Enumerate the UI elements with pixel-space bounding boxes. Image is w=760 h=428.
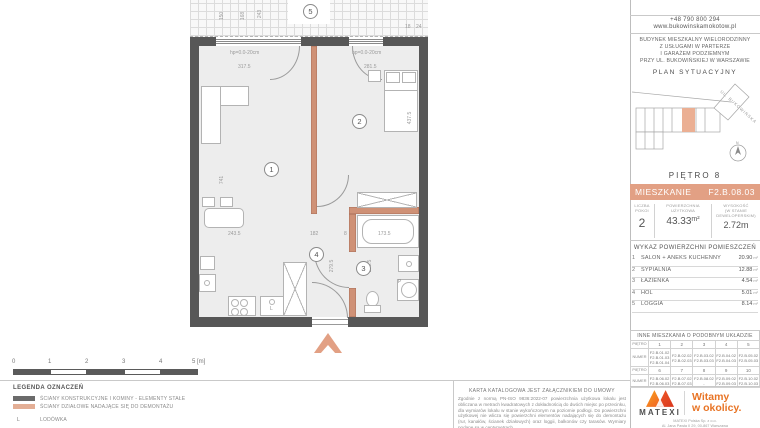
similar-table: PIĘTRO12345NUMERF2.B.01.02F2.B.01.03F2.B… xyxy=(630,340,760,388)
dining-table xyxy=(204,208,244,228)
stat-value: 2.72m xyxy=(712,220,760,230)
toilet-tank xyxy=(364,305,381,313)
stat-label: UŻYTKOWA xyxy=(655,209,711,214)
window xyxy=(216,39,301,44)
dim-label: 281.5 xyxy=(364,64,377,70)
building-description-line: PRZY UL. BUKOWIŃSKIEJ W WARSZAWIE xyxy=(630,58,760,65)
building-description-line: BUDYNEK MIESZKALNY WIELORODZINNY xyxy=(630,37,760,44)
wardrobe xyxy=(357,192,417,208)
wall xyxy=(190,317,312,327)
partition-wall xyxy=(349,214,356,252)
room-number-1: 1 xyxy=(264,162,279,177)
divider xyxy=(684,391,685,415)
scale-segment xyxy=(13,369,50,375)
floor-title: PIĘTRO 8 xyxy=(630,171,760,180)
sofa xyxy=(201,86,221,144)
brand-tagline: Witamy w okolicy. xyxy=(692,392,741,414)
stat-value: 43.33m² xyxy=(655,216,711,227)
dim-label: 18 xyxy=(405,24,411,30)
dim-label: 741 xyxy=(219,176,225,184)
scale-label: 0 xyxy=(12,359,15,365)
fridge-label: L xyxy=(270,306,273,312)
wall xyxy=(301,37,349,46)
area-row: 4HOL5.01m² xyxy=(632,290,758,302)
company-address: Al. Jana Pawła II 29, 00-867 Warszawa xyxy=(630,424,760,428)
legend-swatch-salmon xyxy=(13,404,35,409)
burner-icon xyxy=(231,308,239,316)
apartment-code: F2.B.08.03 xyxy=(708,187,755,197)
dim-label: hp=0.0-20cm xyxy=(230,50,259,56)
entrance-arrow-notch xyxy=(320,345,336,354)
scale-segment xyxy=(124,369,161,375)
washer-label: P xyxy=(398,279,401,285)
legend-item-label: ŚCIANY KONSTRUKCYJNE I KOMINY - ELEMENTY… xyxy=(40,396,185,402)
stat-height: WYSOKOŚĆ (W STANIE DEWELOPERSKIM) 2.72m xyxy=(711,204,760,238)
area-row: 3ŁAZIENKA4.54m² xyxy=(632,278,758,290)
dim-label: 243 xyxy=(257,10,263,18)
wall xyxy=(348,317,428,327)
area-row: 5LOGGIA8.14m² xyxy=(632,301,758,313)
scale-label: 5 [m] xyxy=(192,359,205,365)
chair xyxy=(202,197,215,207)
legend-item-label: LODÓWKA xyxy=(40,417,67,423)
burner-icon xyxy=(240,299,248,307)
window xyxy=(349,39,383,44)
fixture-dot-icon xyxy=(406,261,412,267)
bed-line xyxy=(384,90,418,91)
room-number-3: 3 xyxy=(356,261,371,276)
divider xyxy=(453,380,454,428)
svg-text:N: N xyxy=(736,141,739,145)
wall xyxy=(419,37,428,327)
partition-wall xyxy=(349,288,356,317)
burner-icon xyxy=(231,299,239,307)
legend-item-label: ŚCIANY DZIAŁOWE NADAJĄCE SIĘ DO DEMONTAŻ… xyxy=(40,404,173,410)
scale-label: 1 xyxy=(48,359,51,365)
divider xyxy=(0,380,630,381)
scale-segment xyxy=(50,369,87,375)
divider xyxy=(630,33,760,34)
stat-value: 2 xyxy=(630,216,654,230)
legend-symbol: L xyxy=(17,417,20,423)
burner-icon xyxy=(240,308,248,316)
dim-label: 243.5 xyxy=(228,231,241,237)
legend-title: LEGENDA OZNACZEŃ xyxy=(13,385,84,391)
scale-segment xyxy=(87,369,124,375)
dim-label: hp=0.0-20cm xyxy=(352,50,381,56)
dim-label: 182 xyxy=(310,231,318,237)
dim-label: 168 xyxy=(240,12,246,20)
compass-icon: N xyxy=(730,141,746,161)
website-url: www.bukowinskamokotow.pl xyxy=(630,24,760,30)
washer-drum-icon xyxy=(401,282,417,298)
partition-wall xyxy=(349,207,419,214)
room-number-4: 4 xyxy=(309,247,324,262)
site-plan-sketch: N UL. BUKOWIŃSKA xyxy=(632,78,758,168)
highlighted-unit xyxy=(682,108,695,132)
nightstand xyxy=(368,70,381,82)
kitchen-sink xyxy=(200,256,215,270)
pillow xyxy=(386,72,400,83)
area-row: 1SALON + ANEKS KUCHENNY20.90m² xyxy=(632,255,758,267)
building-description-line: Z USŁUGAMI W PARTERZE xyxy=(630,44,760,51)
site-plan-title: PLAN SYTUACYJNY xyxy=(630,69,760,76)
room-number-5: 5 xyxy=(303,4,318,19)
dim-label: 173.5 xyxy=(378,231,391,237)
divider xyxy=(630,240,760,241)
matexi-logo-icon xyxy=(646,390,674,407)
building-description-line: I GARAŻEM PODZIEMNYM xyxy=(630,51,760,58)
wardrobe xyxy=(283,262,307,316)
entrance-threshold xyxy=(312,319,348,325)
dim-label: 8 xyxy=(344,231,347,237)
scale-label: 3 xyxy=(122,359,125,365)
chair xyxy=(220,197,233,207)
areas-title: WYKAZ POWIERZCHNI POMIESZCZEŃ xyxy=(630,245,760,251)
room-number-2: 2 xyxy=(352,114,367,129)
divider xyxy=(630,386,760,387)
dim-label: 437.5 xyxy=(407,112,413,125)
phone-number: +48 790 800 294 xyxy=(630,17,760,23)
dim-label: 150 xyxy=(219,12,225,20)
dim-label: 24 xyxy=(416,24,422,30)
legend-swatch-dark xyxy=(13,396,35,401)
divider xyxy=(630,15,760,16)
areas-table: 1SALON + ANEKS KUCHENNY20.90m²2SYPIALNIA… xyxy=(632,255,758,313)
stat-area: POWIERZCHNIA UŻYTKOWA 43.33m² xyxy=(654,204,711,238)
scale-label: 4 xyxy=(159,359,162,365)
apartment-banner: MIESZKANIE F2.B.08.03 xyxy=(630,184,760,200)
pillow xyxy=(402,72,416,83)
company-name: MATEXI Polska Sp. z o.o. xyxy=(630,419,760,423)
fixture-dot-icon xyxy=(269,299,275,305)
fixture-dot-icon xyxy=(204,280,210,286)
stat-label: DEWELOPERSKIM) xyxy=(712,214,760,219)
apartment-label: MIESZKANIE xyxy=(635,187,691,197)
stat-label: LICZBA POKOI xyxy=(630,204,654,214)
scale-label: 2 xyxy=(85,359,88,365)
area-row: 2SYPIALNIA12.88m² xyxy=(632,267,758,279)
stat-rooms: LICZBA POKOI 2 xyxy=(630,204,654,238)
scale-segment xyxy=(161,369,198,375)
hob xyxy=(228,296,256,316)
apartment-card: 150 168 243 18 24 xyxy=(0,0,760,428)
brand-name: MATEXI xyxy=(634,408,686,417)
disclaimer-body: Zgodnie z normą PN-ISO 9836:2022-07 powi… xyxy=(458,396,626,428)
dim-label: 279.5 xyxy=(329,260,335,273)
disclaimer-heading: KARTA KATALOGOWA JEST ZAŁĄCZNIKIEM DO UM… xyxy=(457,388,627,394)
wall xyxy=(190,37,199,327)
dim-label: 317.5 xyxy=(238,64,251,70)
